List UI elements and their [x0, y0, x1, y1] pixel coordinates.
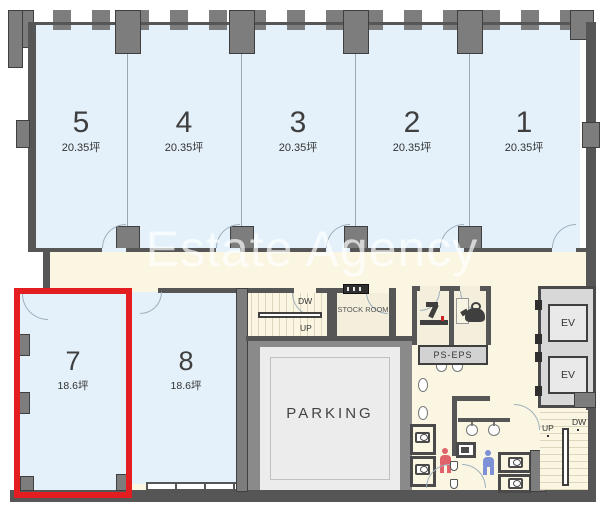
- washstand-wall: [458, 418, 510, 422]
- elevator-1: EV: [548, 304, 588, 342]
- unit-8-number: 8: [146, 348, 226, 375]
- stair-handrail: [258, 312, 322, 318]
- ev-door-tick: [535, 386, 542, 396]
- utility-east-wall: [486, 286, 491, 345]
- west-wall-bump: [16, 120, 30, 148]
- parking-label: PARKING: [264, 405, 396, 422]
- right-stair-up-label: UP: [542, 424, 554, 433]
- corridor-west-wall: [43, 252, 50, 288]
- elevator-2: EV: [548, 356, 588, 394]
- unit-4-number: 4: [144, 108, 224, 138]
- elevator-1-label: EV: [561, 317, 575, 329]
- utility-middle-wall: [449, 286, 454, 345]
- elevator-2-label: EV: [561, 369, 575, 381]
- urinal-icon: [450, 461, 458, 471]
- unit-5-area: 20.35坪: [41, 143, 121, 154]
- urinal-icon: [450, 479, 458, 489]
- basin-icon: [466, 424, 478, 436]
- slop-sink-faucet-icon: [426, 302, 438, 307]
- unit-8-south-windows: [146, 482, 236, 491]
- cleaning-sink-icon: [456, 442, 476, 458]
- floor-plan: 5 20.35坪 4 20.35坪 3 20.35坪 2 20.35坪 1 20…: [0, 0, 602, 515]
- unit-5-number: 5: [41, 108, 121, 138]
- slop-sink-red-mark: [441, 316, 444, 321]
- basin-icon: [488, 424, 500, 436]
- trash-chute-icon: [343, 284, 369, 294]
- ps-eps-label: PS-EPS: [418, 350, 488, 360]
- corner-pillar-nw-stub: [8, 10, 23, 68]
- right-stair-handrail: [562, 428, 569, 486]
- ev-door-tick: [535, 352, 542, 362]
- unit-3-number: 3: [258, 108, 338, 138]
- unit-3-area: 20.35坪: [258, 143, 338, 154]
- oval-basin-icon: [418, 378, 428, 392]
- highlight-frame-unit-7: [14, 288, 132, 498]
- toilet-icon: [508, 478, 523, 489]
- stock-room-label: STOCK ROOM: [337, 305, 389, 315]
- kettle-icon: [465, 308, 485, 322]
- stair-up-label: UP: [300, 324, 312, 333]
- right-stair-down-label: DW: [572, 418, 586, 427]
- unit-1-area: 20.35坪: [484, 143, 564, 154]
- unit-2-number: 2: [372, 108, 452, 138]
- stair-north-wall: [248, 288, 294, 293]
- stair-down-label: DW: [298, 297, 312, 306]
- oval-basin-icon: [418, 406, 428, 420]
- toilet-icon: [415, 464, 430, 475]
- unit-2-area: 20.35坪: [372, 143, 452, 154]
- ev-door-tick: [535, 300, 542, 310]
- shaft-corner-block: [574, 392, 596, 408]
- parking-north-wall: [246, 336, 420, 341]
- unit-1-number: 1: [484, 108, 564, 138]
- powder-wall-h: [452, 396, 490, 401]
- unit-4-area: 20.35坪: [144, 143, 224, 154]
- unit-8-east-wall: [236, 288, 248, 492]
- unit-8-area: 18.6坪: [146, 381, 226, 392]
- east-wall-bump: [582, 122, 600, 148]
- stair-dot: [547, 435, 549, 437]
- ev-door-tick: [535, 334, 542, 344]
- toilet-icon: [415, 432, 430, 443]
- stair-dot: [577, 429, 579, 431]
- man-icon: [481, 450, 495, 475]
- toilet-icon: [508, 457, 523, 468]
